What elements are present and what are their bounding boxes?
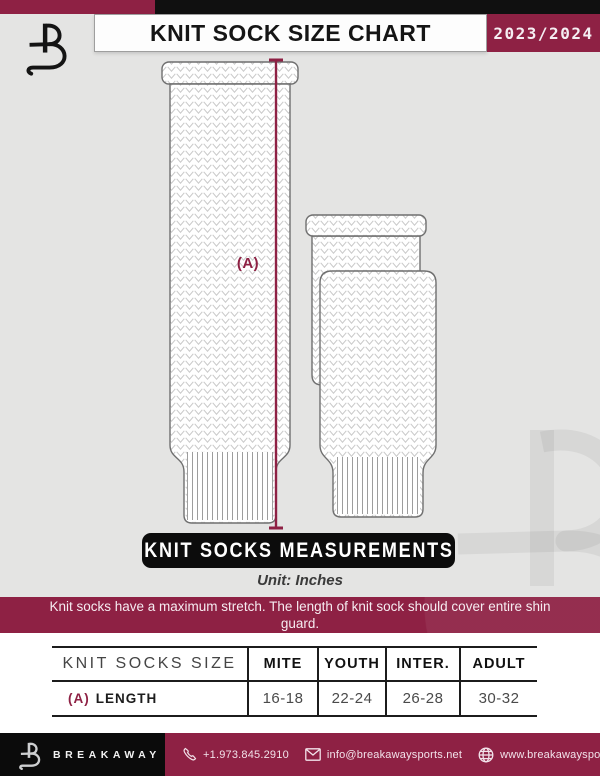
stretch-notice-banner: Knit socks have a maximum stretch. The l… [0, 597, 600, 633]
footer-phone: +1.973.845.2910 [182, 747, 289, 762]
table-col-youth: YOUTH [317, 648, 385, 682]
size-table: KNIT SOCKS SIZE MITE YOUTH INTER. ADULT … [52, 646, 537, 717]
top-accent-strip-maroon [0, 0, 155, 14]
season-label: 2023/2024 [493, 24, 593, 43]
footer-email-address: info@breakawaysports.net [327, 749, 462, 761]
measurements-banner-label: KNIT SOCKS MEASUREMENTS [144, 539, 453, 563]
page-title-box: KNIT SOCK SIZE CHART [94, 14, 487, 52]
envelope-icon [305, 748, 321, 761]
table-col-mite: MITE [247, 648, 317, 682]
breakaway-logo-icon [24, 18, 74, 76]
footer-website-url: www.breakawaysports.net [500, 749, 600, 761]
measurements-banner: KNIT SOCKS MEASUREMENTS [142, 533, 455, 568]
unit-label: Unit: Inches [0, 572, 600, 589]
sock-large [162, 62, 298, 523]
footer-website: www.breakawaysports.net [478, 747, 600, 763]
table-value-youth: 22-24 [317, 682, 385, 715]
footer-brand-name: BREAKAWAY [53, 749, 161, 761]
globe-icon [478, 747, 494, 763]
breakaway-footer-logo-icon [18, 740, 44, 770]
footer-email: info@breakawaysports.net [305, 748, 462, 761]
table-col-inter: INTER. [385, 648, 459, 682]
phone-icon [182, 747, 197, 762]
table-value-adult: 30-32 [459, 682, 537, 715]
table-value-mite: 16-18 [247, 682, 317, 715]
table-value-inter: 26-28 [385, 682, 459, 715]
footer-brand-block: BREAKAWAY [0, 733, 165, 776]
table-row-label: (A) LENGTH [52, 682, 247, 715]
sock-small [320, 271, 436, 517]
page-title: KNIT SOCK SIZE CHART [150, 20, 431, 47]
footer-phone-number: +1.973.845.2910 [203, 749, 289, 761]
knit-socks-illustration [140, 45, 460, 545]
stretch-notice-text: Knit socks have a maximum stretch. The l… [40, 598, 560, 632]
table-title-cell: KNIT SOCKS SIZE [52, 648, 247, 682]
table-col-adult: ADULT [459, 648, 537, 682]
measurement-label-a: (A) [225, 255, 271, 272]
table-row-key: (A) [68, 691, 90, 706]
top-accent-strip-black [155, 0, 600, 14]
footer-contact-bar: +1.973.845.2910 info@breakawaysports.net… [165, 733, 600, 776]
season-badge: 2023/2024 [487, 14, 600, 52]
knit-sock-size-chart-sheet: KNIT SOCK SIZE CHART 2023/2024 [0, 0, 600, 776]
table-row-name: LENGTH [96, 691, 158, 706]
